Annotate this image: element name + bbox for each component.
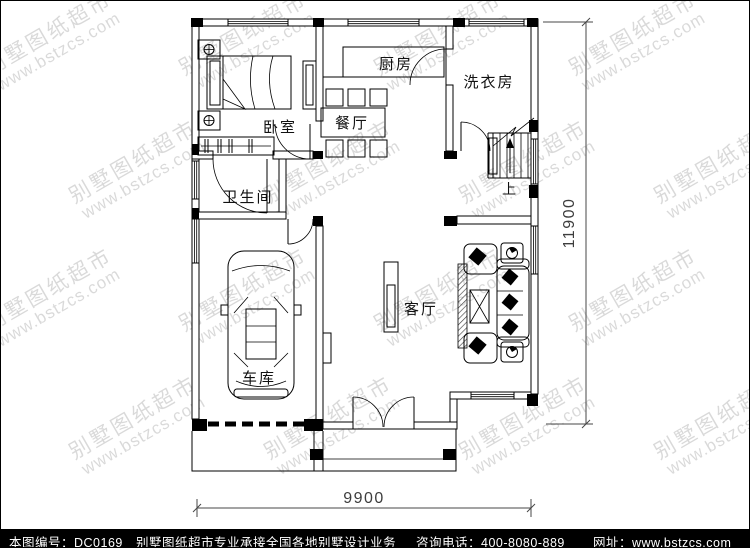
footer-website: 网址：www.bstzcs.com (593, 532, 731, 548)
room-label-laundry: 洗衣房 (463, 74, 514, 91)
sofa-symbol (497, 259, 529, 347)
stair-hall-door-icon (461, 122, 490, 151)
side-table-lamp-icon (501, 342, 523, 362)
room-label-dining: 餐厅 (335, 115, 369, 132)
entry-porch (314, 429, 456, 471)
room-label-garage: 车库 (242, 370, 276, 387)
room-label-kitchen: 厨房 (379, 56, 413, 73)
kitchen-door-icon (410, 49, 446, 85)
floor-plan-page: 别墅图纸超市www.bstzcs.com别墅图纸超市www.bstzcs.com… (0, 0, 750, 548)
footer-drawing-number: 本图编号：DC0169 (9, 532, 123, 548)
bed-symbol (207, 56, 291, 109)
window-icon (228, 19, 288, 26)
window-icon (531, 226, 538, 274)
window-icon (348, 19, 419, 26)
window-icon (471, 392, 514, 399)
room-label-bathroom: 卫生间 (222, 189, 273, 206)
window-icon (469, 19, 524, 26)
window-icon (531, 139, 538, 184)
room-label-bedroom: 卧室 (263, 119, 297, 136)
entry-double-door-icon (353, 397, 414, 427)
stairs-symbol (488, 118, 534, 178)
living-cabinet-symbol (323, 262, 398, 363)
stairs-up-label: 上 (502, 181, 518, 197)
nightstand-lamp-icon (198, 111, 220, 130)
footer-phone: 咨询电话：400-8080-889 (416, 532, 565, 548)
footer-slogan: 别墅图纸超市专业承接全国各地别墅设计业务 (136, 532, 396, 548)
bedroom-cabinet-symbol (303, 61, 316, 109)
garage-door-icon (288, 219, 313, 244)
window-icon (192, 161, 199, 199)
floor-plan: 9900 11900 卧室 厨房 洗衣房 餐厅 卫生间 客厅 车库 上 (1, 1, 750, 529)
armchair-symbol (464, 244, 497, 274)
dimension-width-label: 9900 (343, 490, 385, 507)
window-icon (192, 219, 199, 263)
footer-bar: 本图编号：DC0169 别墅图纸超市专业承接全国各地别墅设计业务 咨询电话：40… (1, 529, 750, 548)
room-label-living: 客厅 (404, 301, 438, 318)
armchair-symbol (464, 333, 497, 363)
garage-apron (192, 431, 323, 471)
side-table-lamp-icon (501, 243, 523, 263)
coffee-table-symbol (470, 290, 489, 323)
dimension-height-label: 11900 (561, 198, 578, 249)
